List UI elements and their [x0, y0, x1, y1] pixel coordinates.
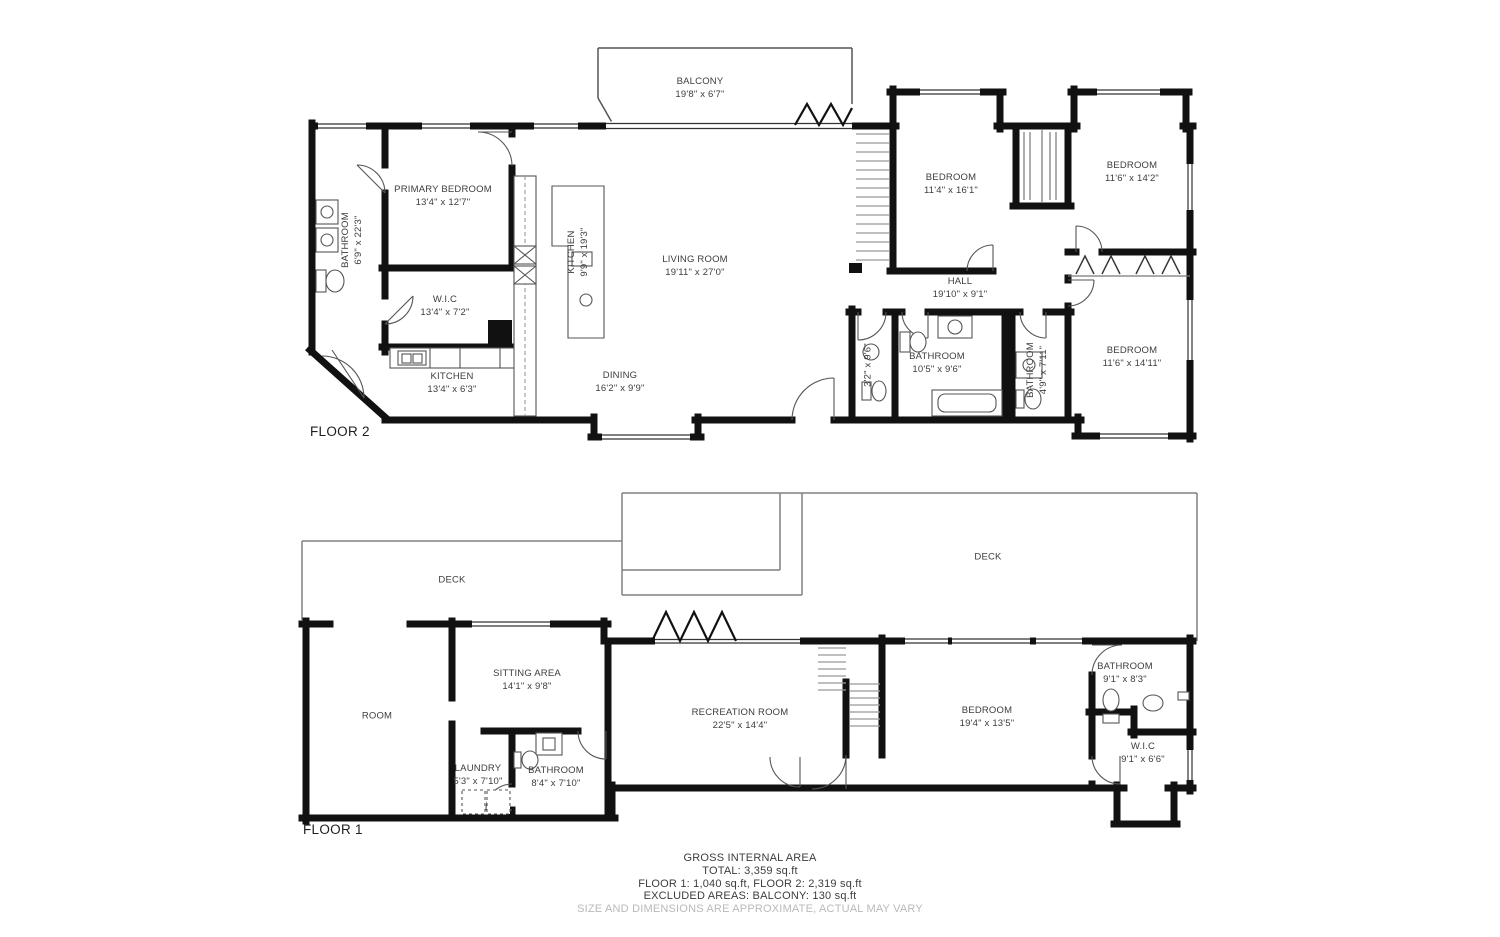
- f2-label-bathroom-small: BATHROOM 4'9" x 7'11": [1024, 342, 1050, 398]
- f2-label-bathroom-left: BATHROOM 6'9" x 22'3": [339, 212, 365, 268]
- f2-label-hall: HALL 19'10" x 9'1": [933, 275, 988, 301]
- f1-label-wic: W.I.C 9'1" x 6'6": [1121, 740, 1165, 766]
- summary-floors: FLOOR 1: 1,040 sq.ft, FLOOR 2: 2,319 sq.…: [0, 878, 1500, 891]
- f1-label-room: ROOM: [362, 710, 392, 723]
- f2-label-kitchen-vertical: KITCHEN 9'9" x 19'3": [565, 227, 591, 276]
- f2-label-balcony: BALCONY 19'8" x 6'7": [675, 75, 724, 101]
- f1-label-deck-right: DECK: [974, 551, 1001, 564]
- f2-label-bedroom-1: BEDROOM 11'4" x 16'1": [924, 171, 978, 197]
- bifold-doors: [1068, 256, 1190, 276]
- balcony-glass-wall: [606, 122, 852, 131]
- f2-label-bedroom-3: BEDROOM 11'6" x 14'11": [1103, 344, 1162, 370]
- floor1-fixtures: [462, 689, 1189, 814]
- f2-label-primary-bedroom: PRIMARY BEDROOM 13'4" x 12'7": [394, 183, 492, 209]
- wall-stub: [849, 263, 862, 273]
- f2-label-wic: W.I.C 13'4" x 7'2": [420, 293, 469, 319]
- area-summary: GROSS INTERNAL AREA TOTAL: 3,359 sq.ft F…: [0, 852, 1500, 916]
- f1-label-sitting-area: SITTING AREA 14'1" x 9'8": [493, 667, 561, 693]
- f2-label-dining: DINING 16'2" x 9'9": [595, 369, 644, 395]
- floorplan-page: BALCONY 19'8" x 6'7" PRIMARY BEDROOM 13'…: [0, 0, 1500, 937]
- f2-label-wc: 3'2" x 9'6": [862, 343, 875, 387]
- break-zigzag-f1: [652, 612, 736, 641]
- summary-excluded: EXCLUDED AREAS: BALCONY: 130 sq.ft: [0, 890, 1500, 903]
- summary-title: GROSS INTERNAL AREA: [0, 852, 1500, 865]
- summary-total: TOTAL: 3,359 sq.ft: [0, 865, 1500, 878]
- recreation-glass-wall: [655, 638, 800, 645]
- floor2-stairs: [856, 134, 889, 260]
- f1-label-bedroom: BEDROOM 19'4" x 13'5": [960, 704, 1015, 730]
- deck-outline: [302, 493, 1197, 641]
- f2-label-kitchen: KITCHEN 13'4" x 6'3": [427, 370, 476, 396]
- f1-label-bathroom-mid: BATHROOM 8'4" x 7'10": [528, 764, 584, 790]
- kitchen-chase-block: [488, 320, 512, 347]
- bedroom-closets: [1024, 129, 1056, 203]
- f1-label-laundry: LAUNDRY 5'3" x 7'10": [453, 762, 502, 788]
- summary-disclaimer: SIZE AND DIMENSIONS ARE APPROXIMATE, ACT…: [0, 903, 1500, 916]
- floorplan-linework: [0, 0, 1500, 937]
- f1-label-bathroom-tr: BATHROOM 9'1" x 8'3": [1097, 660, 1153, 686]
- floor2-tag: FLOOR 2: [310, 424, 370, 439]
- floor1-tag: FLOOR 1: [303, 822, 363, 837]
- f1-label-deck-left: DECK: [438, 574, 465, 587]
- f2-label-bedroom-2: BEDROOM 11'6" x 14'2": [1105, 159, 1159, 185]
- f2-label-bathroom-main: BATHROOM 10'5" x 9'6": [909, 350, 965, 376]
- floor1-plan: [302, 493, 1197, 824]
- f1-label-recreation-room: RECREATION ROOM 22'5" x 14'4": [692, 706, 789, 732]
- f2-label-living-room: LIVING ROOM 19'11" x 27'0": [662, 253, 728, 279]
